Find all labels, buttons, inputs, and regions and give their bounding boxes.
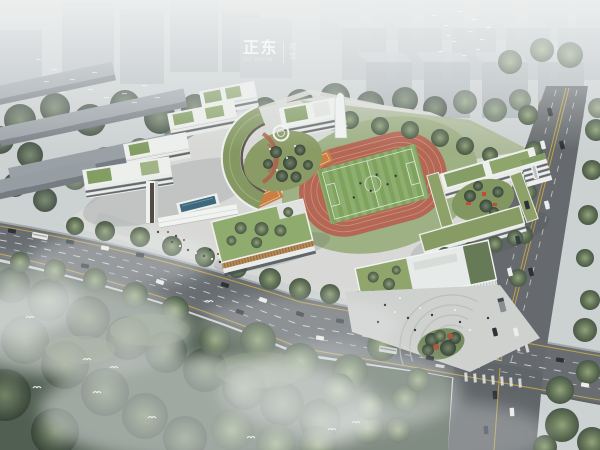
watermark: 正东 EST VISION 视 觉 bbox=[243, 40, 296, 63]
watermark-divider bbox=[283, 41, 284, 63]
watermark-text: 正东 EST VISION bbox=[243, 40, 278, 63]
watermark-side: 视 觉 bbox=[289, 43, 296, 61]
color-grade bbox=[0, 0, 600, 450]
watermark-sub: EST VISION bbox=[243, 58, 278, 63]
aerial-rendering: 正东 EST VISION 视 觉 bbox=[0, 0, 600, 450]
watermark-main: 正东 bbox=[243, 40, 278, 56]
